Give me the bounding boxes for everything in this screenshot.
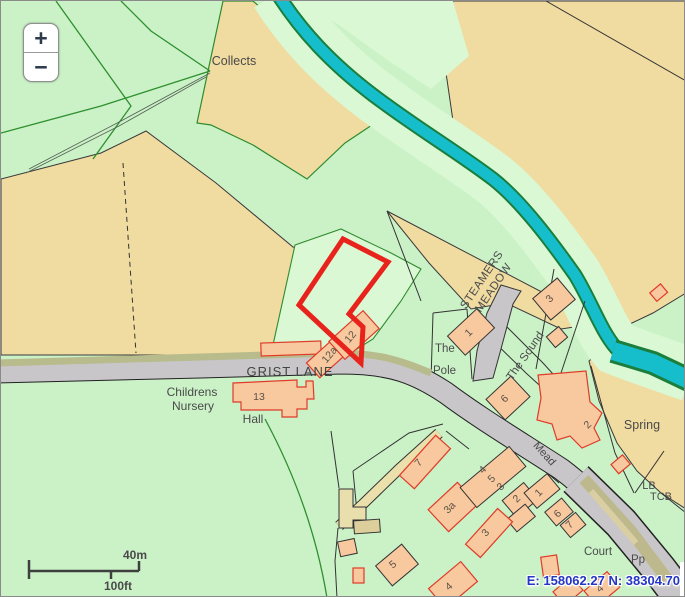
field-label-collects: Collects <box>212 54 256 68</box>
label-hall: Hall <box>243 412 264 426</box>
zoom-in-button[interactable]: + <box>24 24 58 52</box>
building-red-tiny <box>353 568 364 583</box>
building-lane-long <box>261 341 321 356</box>
zoom-out-button[interactable]: − <box>24 53 58 81</box>
label-pole: Pole <box>433 365 456 377</box>
label-court: Court <box>584 546 613 558</box>
building-pent-small <box>338 539 358 557</box>
house-number-13: 13 <box>253 391 265 403</box>
label-nursery: Nursery <box>172 399 214 413</box>
map-edge-sliver <box>680 562 684 596</box>
map-viewport: Collects STEAMERS MEADOW GRIST LANE Chil… <box>0 0 685 597</box>
label-spring: Spring <box>624 418 660 432</box>
label-pp: Pp <box>631 554 645 566</box>
building-tan-small <box>354 519 381 534</box>
label-tcb: TCB <box>650 491 672 503</box>
scale-metric-label: 40m <box>123 548 147 562</box>
road-label-grist-lane: GRIST LANE <box>246 364 333 379</box>
label-childrens: Childrens <box>167 385 218 399</box>
scale-imperial-label: 100ft <box>104 579 132 593</box>
coordinate-readout: E: 158062.27 N: 38304.70 <box>527 573 680 588</box>
map-canvas[interactable]: Collects STEAMERS MEADOW GRIST LANE Chil… <box>1 1 685 597</box>
label-the: The <box>435 343 455 355</box>
zoom-control: + − <box>23 23 59 82</box>
